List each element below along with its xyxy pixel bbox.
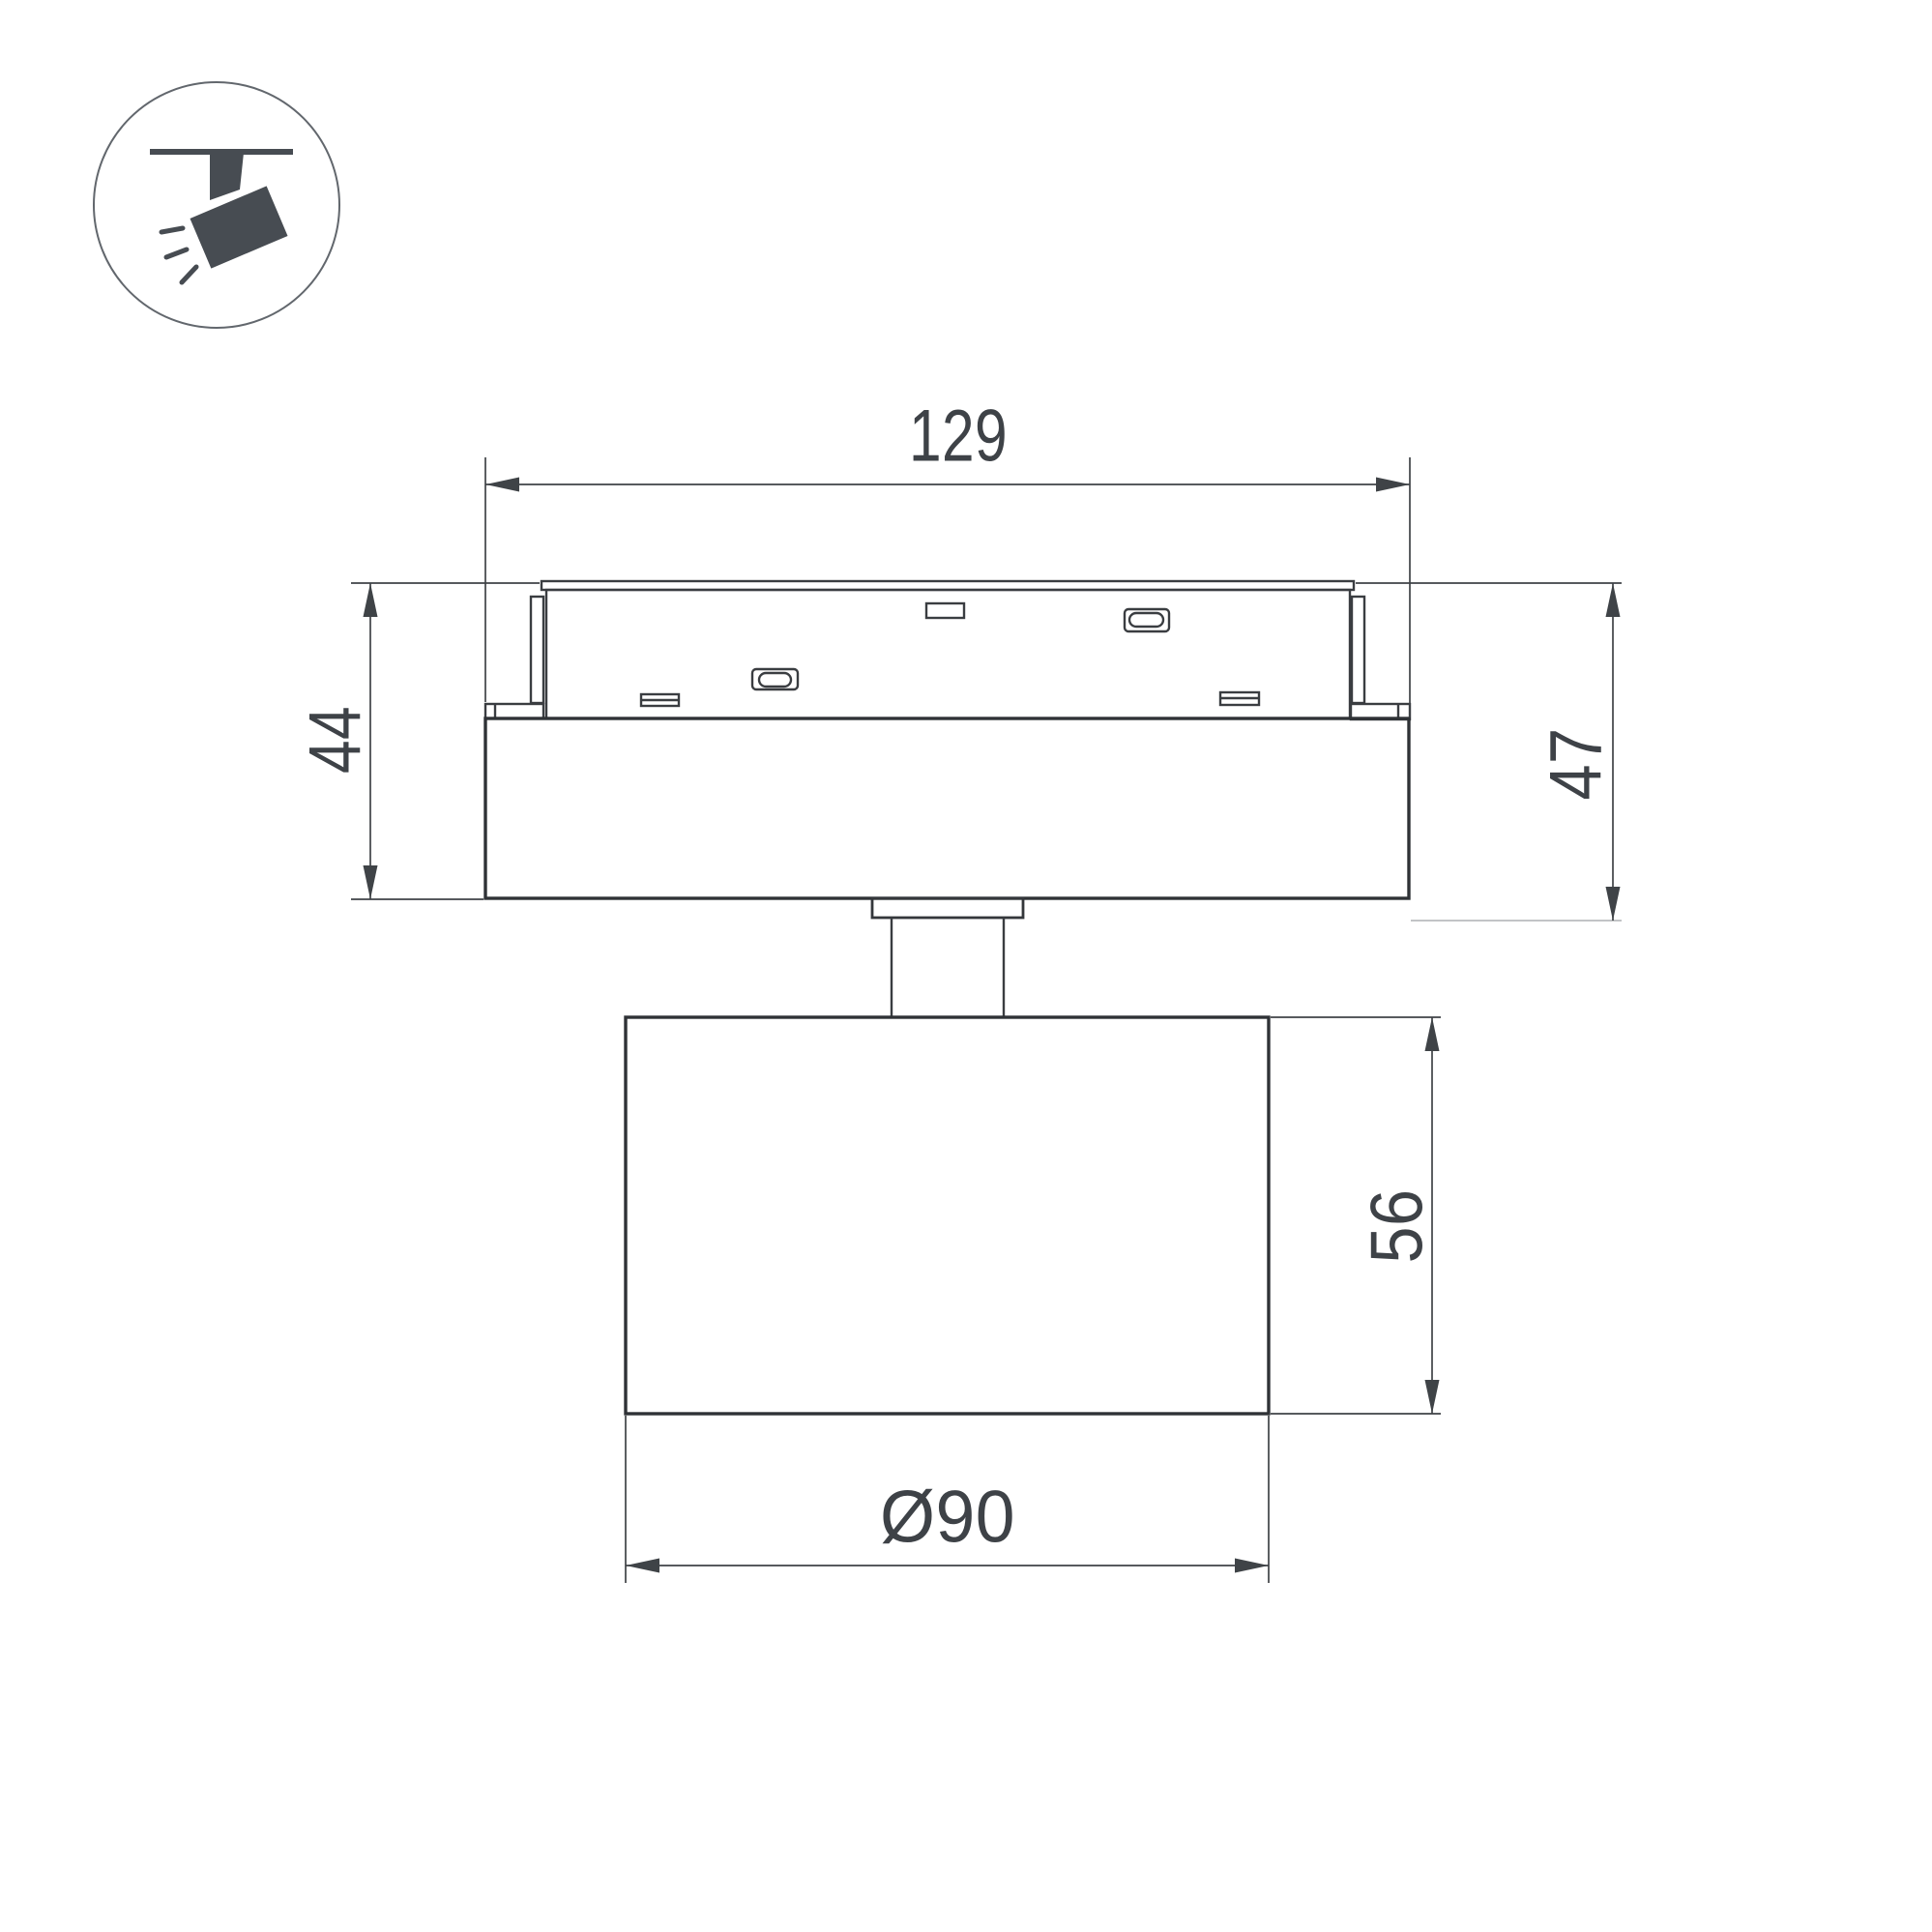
dimension-track-width: 129 xyxy=(485,395,1410,718)
arrowhead-top xyxy=(364,583,378,617)
luminaire-front-view xyxy=(485,581,1410,1414)
dimension-label-module-height-left: 44 xyxy=(295,706,377,774)
dimension-overall-height-right: 47 xyxy=(1356,583,1622,921)
latch-button-right-inner xyxy=(1129,613,1163,627)
dimension-head-diameter: Ø90 xyxy=(626,1416,1269,1583)
base-housing xyxy=(485,718,1409,898)
icon-light-ray-2 xyxy=(166,249,187,257)
dimension-label-head-diameter: Ø90 xyxy=(880,1477,1015,1559)
swivel-flange xyxy=(872,898,1023,918)
arrowhead-top xyxy=(1425,1017,1440,1051)
latch-button-left-inner xyxy=(759,673,791,687)
dimension-label-overall-height-right: 47 xyxy=(1536,728,1618,801)
arrowhead-right xyxy=(1376,478,1410,492)
icon-light-ray-3 xyxy=(182,267,196,282)
icon-light-ray-1 xyxy=(161,228,183,232)
icon-track-stub xyxy=(210,153,244,200)
dimension-module-height-left: 44 xyxy=(295,583,541,899)
track-spotlight-icon xyxy=(94,82,339,328)
arrowhead-right xyxy=(1235,1559,1269,1573)
arrowhead-bottom xyxy=(1606,887,1621,921)
arrowhead-bottom xyxy=(1425,1380,1440,1414)
technical-drawing: 129 44 47 xyxy=(0,0,1932,1932)
drawing-canvas: 129 44 47 xyxy=(0,0,1932,1932)
icon-ring xyxy=(94,82,339,328)
contact-clip-left xyxy=(641,694,679,706)
contact-window xyxy=(926,603,964,618)
mount-bracket-right xyxy=(1352,597,1364,703)
arrowhead-left xyxy=(626,1559,659,1573)
mount-bracket-left xyxy=(531,597,543,703)
arrowhead-bottom xyxy=(364,865,378,899)
arrowhead-top xyxy=(1606,583,1621,617)
icon-spot-head xyxy=(190,186,287,268)
arrowhead-left xyxy=(485,478,519,492)
lamp-head xyxy=(626,1017,1269,1414)
dimension-label-track-width: 129 xyxy=(909,395,1008,478)
dimensions: 129 44 47 xyxy=(295,395,1623,1584)
dimension-head-height: 56 xyxy=(1271,1017,1441,1414)
ledge-left xyxy=(485,704,543,718)
latch-button-left xyxy=(752,669,798,689)
contact-clip-right xyxy=(1220,692,1259,705)
latch-button-right xyxy=(1125,609,1169,631)
dimension-label-head-height: 56 xyxy=(1357,1189,1439,1264)
track-adapter-top-plate xyxy=(542,581,1354,590)
